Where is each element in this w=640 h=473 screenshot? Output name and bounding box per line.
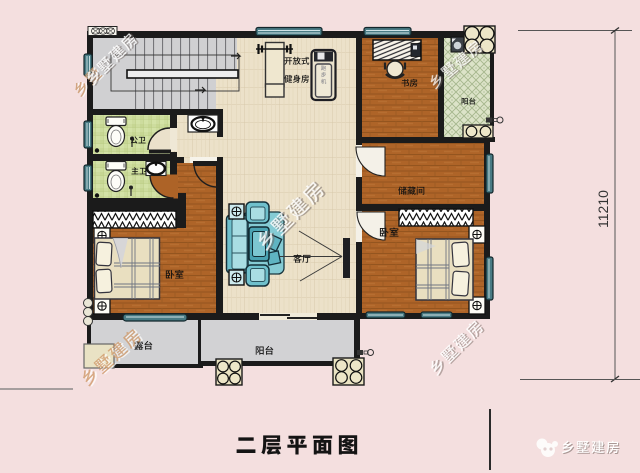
svg-text:11210: 11210 (595, 190, 611, 228)
